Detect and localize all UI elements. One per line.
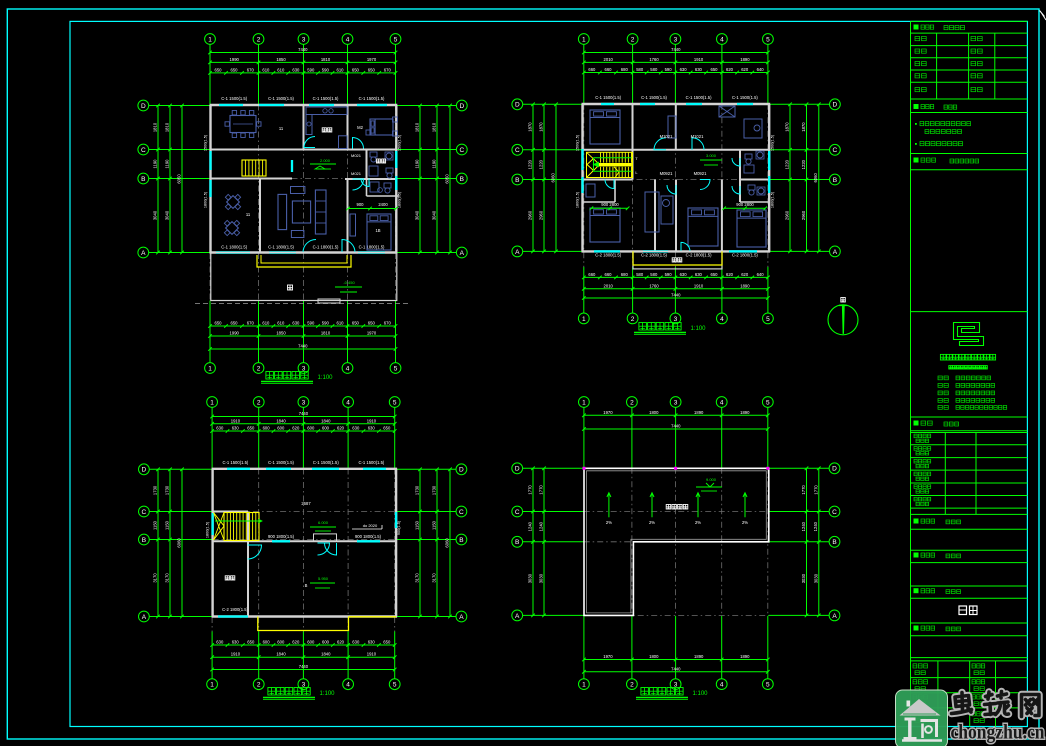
- svg-text:1870: 1870: [785, 122, 790, 132]
- svg-text:9.000: 9.000: [706, 477, 717, 482]
- svg-text:B: B: [460, 176, 464, 183]
- svg-text:6060: 6060: [813, 173, 818, 183]
- svg-text:1150: 1150: [432, 520, 437, 530]
- svg-text:C-2 1800(1.5): C-2 1800(1.5): [686, 253, 712, 258]
- svg-text:1890: 1890: [740, 654, 750, 659]
- svg-text:2%: 2%: [742, 520, 748, 525]
- svg-text:1840: 1840: [321, 652, 331, 657]
- svg-text:C-2 1800(1.5): C-2 1800(1.5): [732, 253, 758, 258]
- svg-text:1760: 1760: [649, 57, 659, 62]
- svg-text:1810: 1810: [165, 122, 170, 132]
- svg-text:C-1 1800(1.5): C-1 1800(1.5): [359, 245, 385, 250]
- svg-text:1: 1: [582, 399, 586, 406]
- svg-text:1:100: 1:100: [692, 691, 708, 697]
- svg-text:600: 600: [307, 426, 315, 431]
- svg-text:C-1 1800(1.5): C-1 1800(1.5): [268, 245, 294, 250]
- svg-text:M2: M2: [357, 125, 363, 130]
- svg-text:2010: 2010: [604, 283, 614, 288]
- svg-text:580: 580: [636, 272, 644, 277]
- svg-text:1: 1: [210, 399, 214, 406]
- svg-text:630: 630: [232, 426, 240, 431]
- svg-text:3030: 3030: [801, 573, 806, 583]
- svg-text:C: C: [459, 509, 464, 516]
- svg-text:630: 630: [216, 640, 224, 645]
- svg-text:C: C: [459, 147, 464, 154]
- svg-text:7440: 7440: [671, 47, 681, 52]
- svg-text:650: 650: [247, 426, 255, 431]
- svg-text:1890: 1890: [740, 283, 750, 288]
- svg-text:1150: 1150: [165, 520, 170, 530]
- svg-text:620: 620: [741, 272, 749, 277]
- svg-text:1:100: 1:100: [317, 375, 333, 381]
- svg-text:7440: 7440: [298, 344, 308, 349]
- svg-text:1800(1.5): 1800(1.5): [576, 191, 580, 208]
- svg-text:1910: 1910: [694, 57, 704, 62]
- svg-text:1910: 1910: [231, 418, 241, 423]
- svg-text:6050: 6050: [445, 174, 450, 184]
- svg-text:B: B: [459, 537, 463, 544]
- svg-text:4: 4: [720, 399, 724, 406]
- svg-text:670: 670: [247, 67, 255, 72]
- svg-text:900(1.5): 900(1.5): [397, 520, 401, 535]
- svg-text:B: B: [141, 176, 145, 183]
- svg-text:1870: 1870: [528, 122, 533, 132]
- svg-text:3: 3: [302, 36, 306, 43]
- svg-text:1850: 1850: [276, 331, 286, 336]
- svg-text:5: 5: [393, 682, 397, 689]
- svg-text:1810: 1810: [321, 57, 331, 62]
- svg-text:C: C: [515, 147, 520, 154]
- svg-text:630: 630: [368, 640, 376, 645]
- svg-text:4: 4: [346, 36, 350, 43]
- svg-text:1240: 1240: [538, 521, 543, 531]
- svg-text:1970: 1970: [367, 57, 377, 62]
- svg-text:1890: 1890: [694, 654, 704, 659]
- svg-text:M021: M021: [351, 153, 362, 158]
- svg-text:1840: 1840: [276, 418, 286, 423]
- svg-text:1870: 1870: [539, 122, 544, 132]
- svg-text:1770: 1770: [813, 485, 818, 495]
- svg-text:1190: 1190: [415, 159, 420, 169]
- svg-text:C-1 1500(1.5): C-1 1500(1.5): [732, 95, 758, 100]
- svg-text:1:100: 1:100: [319, 691, 335, 697]
- svg-text:630: 630: [680, 67, 688, 72]
- svg-text:3170: 3170: [415, 573, 420, 583]
- svg-text:1800(1.5): 1800(1.5): [206, 521, 210, 538]
- svg-text:2687: 2687: [301, 501, 311, 506]
- svg-text:660: 660: [588, 67, 596, 72]
- svg-text:1: 1: [582, 682, 586, 689]
- svg-text:1890: 1890: [740, 57, 750, 62]
- svg-text:C-1 1500(1.5): C-1 1500(1.5): [359, 96, 385, 101]
- svg-text:M0921: M0921: [694, 171, 707, 176]
- svg-text:3040: 3040: [153, 210, 158, 220]
- svg-text:900 2800: 900 2800: [736, 202, 754, 207]
- svg-text:610: 610: [337, 67, 345, 72]
- svg-text:590: 590: [307, 321, 315, 326]
- svg-text:1800: 1800: [649, 410, 659, 415]
- svg-text:C-1 1500(1.5): C-1 1500(1.5): [313, 96, 339, 101]
- svg-text:1190: 1190: [165, 159, 170, 169]
- svg-text:1970: 1970: [367, 331, 377, 336]
- svg-text:D: D: [833, 102, 838, 109]
- svg-text:600: 600: [277, 426, 285, 431]
- svg-text:4: 4: [720, 36, 724, 43]
- svg-text:2400: 2400: [378, 202, 388, 207]
- svg-text:3: 3: [674, 399, 678, 406]
- svg-text:680: 680: [621, 67, 629, 72]
- svg-text:5: 5: [766, 316, 770, 323]
- svg-text:B: B: [515, 177, 519, 184]
- svg-text:1800: 1800: [649, 654, 659, 659]
- svg-text:600: 600: [307, 640, 315, 645]
- svg-text:650: 650: [215, 321, 223, 326]
- svg-text:590: 590: [665, 67, 673, 72]
- svg-text:C: C: [141, 147, 146, 154]
- svg-text:630: 630: [216, 426, 224, 431]
- svg-text:1190: 1190: [153, 159, 158, 169]
- svg-text:B: B: [305, 583, 308, 588]
- svg-text:B: B: [142, 537, 146, 544]
- svg-text:6060: 6060: [550, 173, 555, 183]
- svg-text:650: 650: [368, 67, 376, 72]
- svg-text:630: 630: [352, 426, 360, 431]
- svg-text:D: D: [459, 103, 464, 110]
- svg-text:1800(1.5): 1800(1.5): [771, 191, 775, 208]
- svg-text:7440: 7440: [299, 664, 309, 669]
- svg-text:1910: 1910: [367, 652, 377, 657]
- svg-text:3040: 3040: [415, 210, 420, 220]
- svg-text:590: 590: [322, 67, 330, 72]
- svg-text:2%: 2%: [695, 520, 701, 525]
- svg-text:2010: 2010: [604, 57, 614, 62]
- svg-text:7440: 7440: [299, 411, 309, 416]
- svg-text:1: 1: [208, 36, 212, 43]
- svg-text:1910: 1910: [367, 418, 377, 423]
- svg-text:1500(1.5): 1500(1.5): [576, 134, 580, 151]
- svg-text:620: 620: [292, 640, 300, 645]
- svg-text:C-1 1800(1.5): C-1 1800(1.5): [221, 245, 247, 250]
- svg-text:2: 2: [257, 682, 261, 689]
- svg-text:1: 1: [210, 682, 214, 689]
- svg-text:1B: 1B: [375, 228, 380, 233]
- svg-text:600: 600: [277, 640, 285, 645]
- svg-text:580: 580: [650, 272, 658, 277]
- svg-text:1810: 1810: [415, 122, 420, 132]
- svg-text:1:100: 1:100: [690, 326, 706, 332]
- svg-text:660: 660: [588, 272, 596, 277]
- svg-text:4: 4: [720, 682, 724, 689]
- svg-text:620: 620: [337, 640, 345, 645]
- svg-text:630: 630: [352, 640, 360, 645]
- svg-text:3170: 3170: [432, 573, 437, 583]
- svg-text:A: A: [459, 614, 464, 621]
- svg-text:D: D: [459, 467, 464, 474]
- svg-text:C: C: [832, 509, 837, 516]
- svg-text:5: 5: [766, 682, 770, 689]
- svg-text:2: 2: [631, 36, 635, 43]
- svg-text:A: A: [515, 613, 520, 620]
- svg-text:1870: 1870: [801, 122, 806, 132]
- svg-text:610: 610: [262, 321, 270, 326]
- svg-text:650: 650: [231, 321, 239, 326]
- svg-text:11: 11: [246, 212, 251, 217]
- svg-text:650: 650: [215, 67, 223, 72]
- svg-text:620: 620: [337, 426, 345, 431]
- svg-text:2: 2: [630, 399, 634, 406]
- svg-text:2.000: 2.000: [320, 158, 331, 163]
- svg-text:2%: 2%: [606, 520, 612, 525]
- svg-text:do 2020: do 2020: [363, 523, 378, 528]
- svg-text:590: 590: [322, 321, 330, 326]
- svg-text:1970: 1970: [603, 654, 613, 659]
- svg-text:1760: 1760: [649, 283, 659, 288]
- svg-text:6060: 6060: [177, 538, 182, 548]
- svg-text:C: C: [142, 509, 147, 516]
- svg-text:3170: 3170: [153, 573, 158, 583]
- svg-text:7440: 7440: [671, 293, 681, 298]
- svg-text:1840: 1840: [276, 652, 286, 657]
- svg-text:900 1800(1.5): 900 1800(1.5): [268, 534, 295, 539]
- svg-text:1770: 1770: [801, 485, 806, 495]
- svg-text:610: 610: [262, 67, 270, 72]
- svg-text:3: 3: [674, 36, 678, 43]
- svg-text:C-1 1500(1.5): C-1 1500(1.5): [641, 95, 667, 100]
- svg-text:640: 640: [757, 272, 765, 277]
- svg-text:650: 650: [231, 67, 239, 72]
- svg-text:650: 650: [711, 272, 719, 277]
- svg-text:6050: 6050: [177, 174, 182, 184]
- svg-text:630: 630: [232, 640, 240, 645]
- svg-text:1240: 1240: [813, 521, 818, 531]
- svg-text:670: 670: [247, 321, 255, 326]
- svg-text:C-1 1500(1.5): C-1 1500(1.5): [268, 96, 294, 101]
- svg-text:1850: 1850: [276, 57, 286, 62]
- svg-text:600: 600: [263, 640, 271, 645]
- svg-text:650: 650: [247, 640, 255, 645]
- svg-text:3040: 3040: [432, 210, 437, 220]
- svg-text:C-1 1500(1.5): C-1 1500(1.5): [268, 460, 294, 465]
- svg-text:1910: 1910: [231, 652, 241, 657]
- svg-text:1190: 1190: [432, 159, 437, 169]
- svg-text:610: 610: [277, 67, 285, 72]
- svg-text:3: 3: [674, 316, 678, 323]
- svg-text:3.000: 3.000: [706, 153, 717, 158]
- svg-text:A: A: [142, 614, 147, 621]
- svg-text:A: A: [832, 613, 837, 620]
- svg-text:1810: 1810: [153, 122, 158, 132]
- svg-text:B: B: [515, 539, 519, 546]
- svg-text:A: A: [515, 249, 520, 256]
- svg-text:1220: 1220: [785, 159, 790, 169]
- svg-text:620: 620: [292, 426, 300, 431]
- svg-text:D: D: [141, 103, 146, 110]
- svg-text:-0.450: -0.450: [343, 280, 355, 285]
- svg-text:A: A: [141, 250, 146, 257]
- svg-text:1910: 1910: [694, 283, 704, 288]
- svg-text:1: 1: [582, 36, 586, 43]
- svg-text:4: 4: [346, 365, 350, 372]
- svg-text:580: 580: [650, 67, 658, 72]
- svg-text:C-1 1500(1.5): C-1 1500(1.5): [222, 460, 248, 465]
- svg-text:C-1 1500(1.5): C-1 1500(1.5): [221, 96, 247, 101]
- svg-text:4: 4: [346, 399, 350, 406]
- svg-text:D: D: [515, 102, 520, 109]
- svg-text:2: 2: [631, 316, 635, 323]
- svg-text:1810: 1810: [432, 122, 437, 132]
- svg-text:1730: 1730: [165, 485, 170, 495]
- svg-text:1220: 1220: [539, 159, 544, 169]
- svg-text:580: 580: [636, 67, 644, 72]
- svg-text:7440: 7440: [671, 424, 681, 429]
- svg-text:M021: M021: [351, 171, 362, 176]
- svg-text:6.000: 6.000: [318, 520, 329, 525]
- svg-text:1500(1.5): 1500(1.5): [398, 134, 402, 151]
- svg-text:590: 590: [307, 67, 315, 72]
- svg-text:630: 630: [680, 272, 688, 277]
- svg-text:C-1 1500(1.5): C-1 1500(1.5): [595, 95, 621, 100]
- svg-text:1730: 1730: [432, 485, 437, 495]
- svg-text:1770: 1770: [539, 485, 544, 495]
- svg-text:620: 620: [741, 67, 749, 72]
- svg-text:5: 5: [394, 36, 398, 43]
- svg-text:5: 5: [766, 399, 770, 406]
- svg-text:1500(1.5): 1500(1.5): [204, 134, 208, 151]
- svg-text:4: 4: [346, 682, 350, 689]
- svg-text:7440: 7440: [671, 666, 681, 671]
- svg-text:5: 5: [393, 399, 397, 406]
- svg-text:900 2800: 900 2800: [601, 202, 619, 207]
- svg-text:630: 630: [292, 67, 300, 72]
- svg-text:1500(1.5): 1500(1.5): [771, 134, 775, 151]
- svg-text:3030: 3030: [528, 573, 533, 583]
- svg-text:3030: 3030: [539, 573, 544, 583]
- svg-text:1800(1.5): 1800(1.5): [398, 191, 402, 208]
- svg-text:1890: 1890: [740, 410, 750, 415]
- svg-text:1810: 1810: [321, 331, 331, 336]
- svg-text:610: 610: [277, 321, 285, 326]
- svg-text:2: 2: [630, 682, 634, 689]
- svg-text:1: 1: [582, 316, 586, 323]
- svg-text:D: D: [515, 466, 520, 473]
- svg-text:3170: 3170: [165, 573, 170, 583]
- svg-text:900: 900: [357, 202, 365, 207]
- svg-text:1800(1.5): 1800(1.5): [204, 191, 208, 208]
- svg-text:600: 600: [322, 640, 330, 645]
- svg-text:3040: 3040: [165, 210, 170, 220]
- svg-text:C-1 1500(1.5): C-1 1500(1.5): [686, 95, 712, 100]
- svg-text:C-1 1500(1.5): C-1 1500(1.5): [313, 460, 339, 465]
- svg-text:670: 670: [384, 321, 392, 326]
- svg-text:650: 650: [352, 67, 360, 72]
- svg-text:2: 2: [257, 365, 261, 372]
- svg-text:600: 600: [322, 426, 330, 431]
- svg-text:D: D: [142, 467, 147, 474]
- svg-text:2: 2: [257, 399, 261, 406]
- svg-text:600: 600: [263, 426, 271, 431]
- svg-text:chongzhu.cn: chongzhu.cn: [951, 720, 1045, 744]
- svg-text:C-1 1500(1.5): C-1 1500(1.5): [358, 460, 384, 465]
- svg-text:3030: 3030: [813, 573, 818, 583]
- svg-text:1730: 1730: [415, 485, 420, 495]
- svg-text:1990: 1990: [230, 331, 240, 336]
- svg-text:C-2 1800(1.5): C-2 1800(1.5): [595, 253, 621, 258]
- svg-text:1150: 1150: [153, 520, 158, 530]
- svg-text:B: B: [833, 177, 837, 184]
- svg-text:A: A: [833, 249, 838, 256]
- svg-text:900 1800(1.5): 900 1800(1.5): [355, 534, 382, 539]
- svg-text:630: 630: [695, 272, 703, 277]
- svg-text:650: 650: [368, 321, 376, 326]
- svg-text:C: C: [515, 509, 520, 516]
- svg-text:M1021: M1021: [691, 134, 704, 139]
- svg-text:660: 660: [605, 272, 613, 277]
- svg-text:2960: 2960: [801, 210, 806, 220]
- svg-text:2960: 2960: [538, 210, 543, 220]
- svg-text:2: 2: [257, 36, 261, 43]
- svg-text:650: 650: [711, 67, 719, 72]
- svg-text:4: 4: [720, 316, 724, 323]
- svg-text:1220: 1220: [528, 159, 533, 169]
- svg-text:680: 680: [621, 272, 629, 277]
- svg-text:2%: 2%: [649, 520, 655, 525]
- svg-text:660: 660: [605, 67, 613, 72]
- svg-text:1970: 1970: [603, 410, 613, 415]
- svg-text:2960: 2960: [784, 210, 789, 220]
- svg-text:620: 620: [726, 67, 734, 72]
- svg-text:C: C: [833, 147, 838, 154]
- svg-text:C-2 1800(1.5): C-2 1800(1.5): [641, 253, 667, 258]
- svg-text:650: 650: [352, 321, 360, 326]
- svg-text:1240: 1240: [527, 521, 532, 531]
- svg-text:1840: 1840: [321, 418, 331, 423]
- svg-text:1890: 1890: [694, 410, 704, 415]
- svg-text:A: A: [460, 250, 465, 257]
- svg-text:1: 1: [208, 365, 212, 372]
- svg-text:630: 630: [695, 67, 703, 72]
- svg-text:1240: 1240: [801, 521, 806, 531]
- svg-text:590: 590: [665, 272, 673, 277]
- svg-text:1770: 1770: [528, 485, 533, 495]
- svg-text:630: 630: [292, 321, 300, 326]
- svg-text:5: 5: [394, 365, 398, 372]
- svg-text:7440: 7440: [298, 47, 308, 52]
- svg-text:610: 610: [337, 321, 345, 326]
- svg-text:640: 640: [757, 67, 765, 72]
- svg-text:M1021: M1021: [660, 134, 673, 139]
- svg-text:C-1 1800(1.5): C-1 1800(1.5): [313, 245, 339, 250]
- svg-text:620: 620: [726, 272, 734, 277]
- svg-text:1730: 1730: [153, 485, 158, 495]
- svg-text:650: 650: [383, 426, 391, 431]
- svg-text:630: 630: [368, 426, 376, 431]
- svg-text:5.950: 5.950: [318, 576, 329, 581]
- svg-text:D: D: [832, 466, 837, 473]
- svg-text:1220: 1220: [801, 159, 806, 169]
- svg-text:C-2 1800(1.5): C-2 1800(1.5): [222, 607, 248, 612]
- svg-text:650: 650: [383, 640, 391, 645]
- svg-text:11: 11: [279, 126, 284, 131]
- svg-text:2960: 2960: [527, 210, 532, 220]
- svg-text:M0921: M0921: [660, 171, 673, 176]
- svg-text:1990: 1990: [230, 57, 240, 62]
- svg-text:3: 3: [302, 399, 306, 406]
- svg-text:6060: 6060: [445, 538, 450, 548]
- svg-text:B: B: [832, 539, 836, 546]
- svg-text:5: 5: [766, 36, 770, 43]
- svg-text:1150: 1150: [415, 520, 420, 530]
- svg-text:670: 670: [384, 67, 392, 72]
